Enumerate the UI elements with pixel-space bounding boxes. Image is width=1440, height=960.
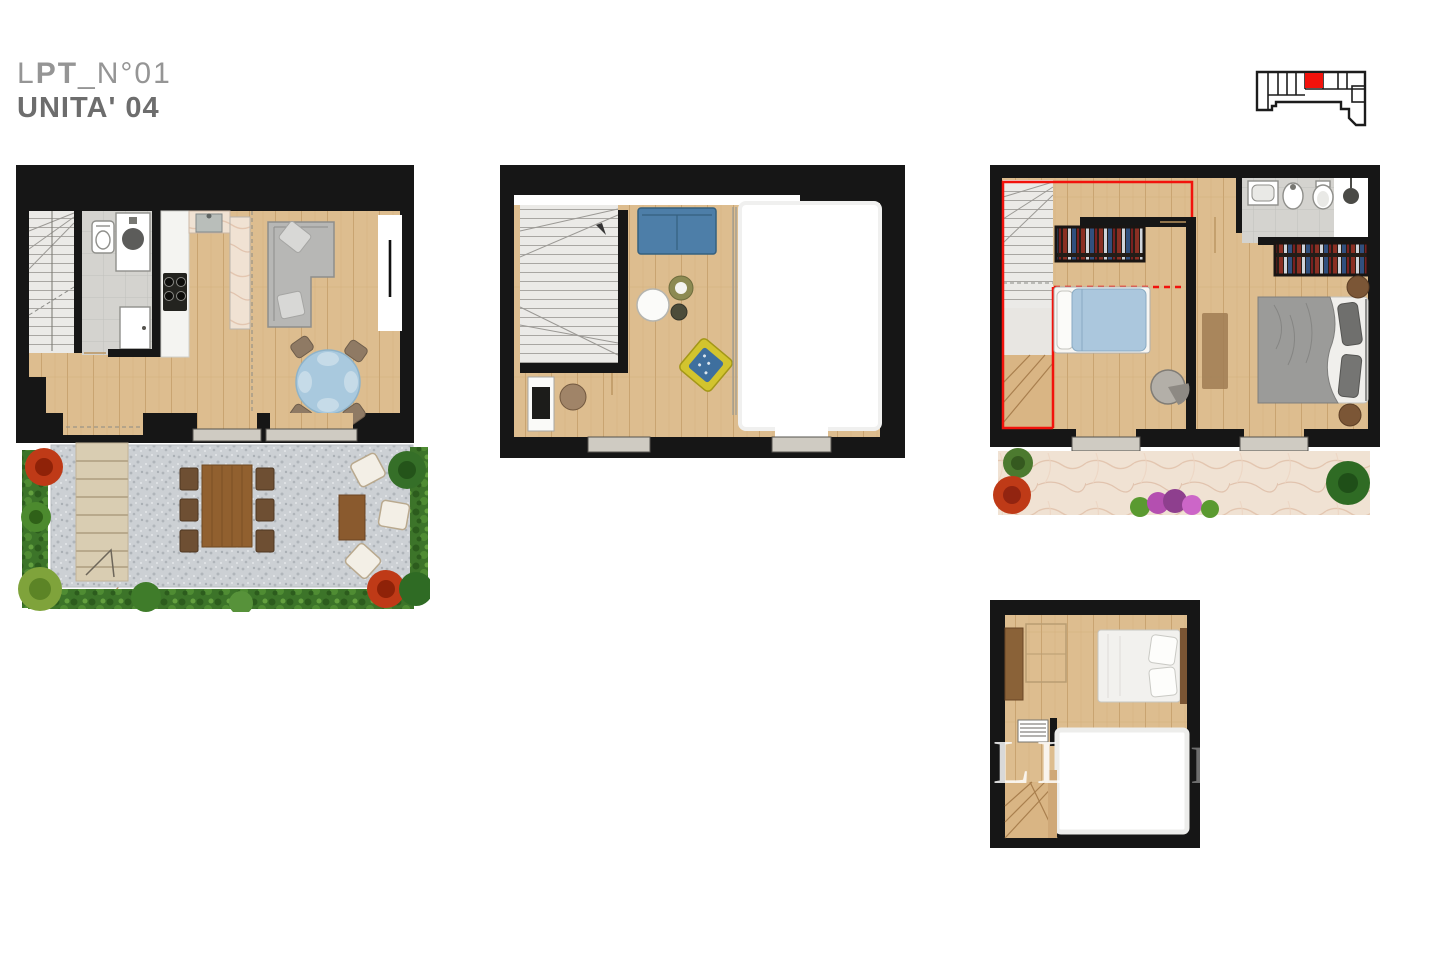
staircase [29,211,76,353]
kitchen-column [230,217,250,329]
washbasin-icon [116,213,150,271]
title-block: LPT_N°01 UNITA' 04 [17,56,172,126]
stone-path [76,443,128,581]
window-niche [378,215,402,331]
plan-code: LPT_N°01 [17,56,172,91]
garden [18,443,430,612]
shower-icon [120,307,150,349]
lounge-coffee-table [339,495,365,540]
bathroom [82,211,152,357]
single-bed [1054,287,1150,353]
wardrobe-2 [1275,243,1368,275]
plan-second-floor [990,165,1380,520]
staircase [520,205,618,367]
kitchen-sink-icon [196,214,222,233]
toilet-icon [92,221,114,253]
pouf [1339,404,1361,426]
stove-icon [163,273,187,311]
outdoor-dining-table [202,465,252,547]
watermark: OLLONR [942,728,1236,799]
hedge-bottom [28,589,414,609]
plan-first-floor [500,165,905,458]
void-opening [740,203,880,429]
blue-sofa [638,208,716,254]
wardrobe [1056,227,1144,261]
dining-table [296,350,360,414]
wardrobe [1005,628,1023,700]
unit-label: UNITA' 04 [17,91,172,125]
toilet-icon [1313,181,1333,209]
double-bed [1098,628,1187,704]
bidet-icon [1283,183,1303,209]
desk-chair [560,384,586,410]
shower-icon [1334,178,1368,243]
washbasin-icon [1248,181,1278,205]
highlighted-unit [1305,73,1323,88]
floorplan-sheet: LPT_N°01 UNITA' 04 [0,0,1440,960]
staircase [1003,180,1053,429]
terrace [993,448,1370,518]
pouf [1347,276,1369,298]
building-key-plan [1248,62,1380,134]
plan-attic [990,600,1200,848]
desk [528,377,554,431]
headboard [1180,628,1187,704]
double-bed [1258,297,1368,403]
plan-ground-floor [16,165,430,612]
rug [1202,313,1228,389]
